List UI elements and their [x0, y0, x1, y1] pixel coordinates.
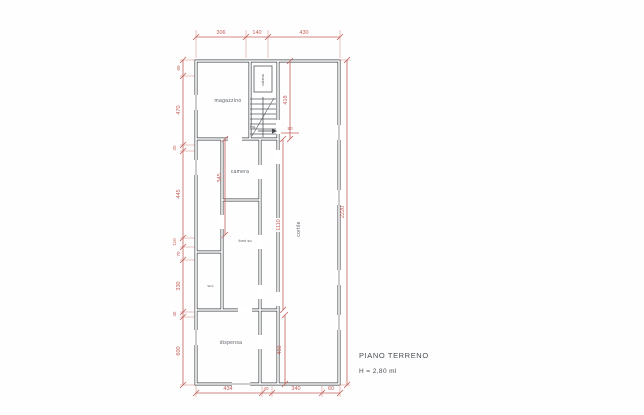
dim-left-5: 110 — [172, 238, 177, 246]
dimension-ticks — [180, 34, 350, 396]
dim-top-2: 140 — [252, 30, 261, 36]
room-label-forni: forni so — [238, 238, 252, 243]
dim-left-9: 600 — [176, 346, 182, 355]
room-label-camera: camera — [231, 169, 249, 175]
dim-bottom-4: 60 — [328, 386, 334, 392]
dim-bottom-2: 40 — [263, 386, 269, 391]
room-label-magazzino: magazzino — [215, 98, 242, 104]
title-block: PIANO TERRENO H = 2,80 ml — [359, 351, 429, 375]
dim-left-7: 330 — [176, 281, 182, 290]
dim-corridor-length: 1110 — [276, 219, 282, 230]
plan-height-note: H = 2,80 ml — [359, 368, 397, 375]
dim-left-6: 70 — [176, 251, 181, 257]
dim-camera-depth: 345 — [217, 173, 223, 182]
room-label-wc: w.c. — [208, 283, 215, 288]
dimension-chains — [183, 37, 347, 393]
dim-left-8: 45 — [172, 311, 177, 317]
floor-plan-sheet: 306 140 430 60 470 20 445 110 70 330 45 … — [0, 0, 644, 415]
dim-bottom-1: 434 — [223, 386, 232, 392]
dim-top-3: 430 — [299, 30, 308, 36]
room-label-ingresso: ing. — [250, 124, 256, 129]
floor-plan-drawing: 306 140 430 60 470 20 445 110 70 330 45 … — [0, 0, 644, 415]
extension-lines — [180, 30, 350, 397]
room-label-cortile: cortile — [296, 221, 302, 236]
dimension-lines — [180, 30, 350, 397]
dim-left-3: 20 — [172, 145, 177, 151]
dim-bottom-3: 340 — [291, 386, 300, 392]
room-label-dispensa: dispensa — [220, 340, 242, 346]
plan-title: PIANO TERRENO — [359, 351, 429, 360]
dim-dispensa-depth: 480 — [277, 345, 283, 354]
dim-entry-width: 90 — [287, 126, 293, 131]
dim-stair-bay: 418 — [283, 95, 289, 104]
dim-right-overall: 2220 — [340, 206, 346, 218]
dim-left-2: 470 — [176, 105, 182, 114]
room-label-cabina: cabina — [260, 73, 265, 86]
dim-left-4: 445 — [176, 189, 182, 198]
dim-top-1: 306 — [216, 30, 225, 36]
dim-left-1: 60 — [176, 65, 181, 71]
